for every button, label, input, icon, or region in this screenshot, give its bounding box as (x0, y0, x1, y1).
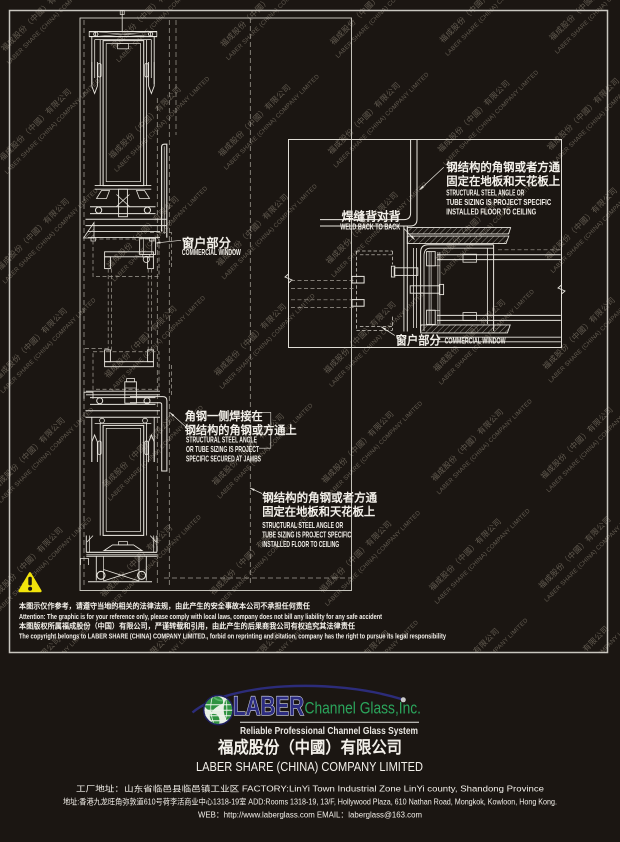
svg-text:福成股份（中國）有限公司: 福成股份（中國）有限公司 (541, 295, 618, 372)
svg-text:LABER SHARE (CHINA) COMPANY LI: LABER SHARE (CHINA) COMPANY LIMITED (196, 760, 423, 774)
svg-text:福成股份（中國）有限公司: 福成股份（中國）有限公司 (319, 409, 396, 486)
svg-text:LABER SHARE (CHINA) COMPANY LI: LABER SHARE (CHINA) COMPANY LIMITED (326, 400, 425, 499)
svg-text:福成股份（中國）有限公司: 福成股份（中國）有限公司 (216, 82, 293, 159)
svg-text:TUBE SIZING IS PROJECT SPECIFI: TUBE SIZING IS PROJECT SPECIFIC (262, 530, 351, 540)
svg-text:LABER SHARE (CHINA) COMPANY LI: LABER SHARE (CHINA) COMPANY LIMITED (109, 294, 208, 393)
svg-text:LABER SHARE (CHINA) COMPANY LI: LABER SHARE (CHINA) COMPANY LIMITED (219, 292, 318, 391)
svg-text:The copyright belongs to LABER: The copyright belongs to LABER SHARE (CH… (19, 632, 447, 641)
svg-text:LABER: LABER (233, 691, 304, 721)
svg-text:LABER SHARE (CHINA) COMPANY LI: LABER SHARE (CHINA) COMPANY LIMITED (111, 185, 210, 284)
svg-text:福成股份（中國）有限公司: 福成股份（中國）有限公司 (106, 84, 183, 161)
svg-text:福成股份（中國）有限公司: 福成股份（中國）有限公司 (100, 413, 177, 490)
svg-text:福成股份（中國）有限公司: 福成股份（中國）有限公司 (94, 742, 171, 819)
svg-text:本图示仅作参考，请遵守当地的相关的法律法规，由此产生的安全事: 本图示仅作参考，请遵守当地的相关的法律法规，由此产生的安全事故本公司不承担任何责… (19, 601, 310, 611)
svg-text:LABER SHARE (CHINA) COMPANY LI: LABER SHARE (CHINA) COMPANY LIMITED (442, 69, 541, 168)
svg-text:钢结构的角钢或者方通: 钢结构的角钢或者方通 (446, 160, 560, 174)
svg-text:LABER SHARE (CHINA) COMPANY LI: LABER SHARE (CHINA) COMPANY LIMITED (433, 507, 532, 606)
svg-text:STRUCTURAL STEEL ANGLE OR: STRUCTURAL STEEL ANGLE OR (446, 187, 524, 197)
svg-text:LABER SHARE (CHINA) COMPANY LI: LABER SHARE (CHINA) COMPANY LIMITED (113, 75, 212, 174)
svg-text:INSTALLED FLOOR TO CEILING: INSTALLED FLOOR TO CEILING (262, 539, 339, 549)
svg-text:福成股份（中國）有限公司: 福成股份（中國）有限公司 (217, 738, 402, 757)
svg-text:INSTALLED FLOOR TO CEILING: INSTALLED FLOOR TO CEILING (446, 207, 536, 217)
svg-text:WELD BACK TO BACK: WELD BACK TO BACK (340, 221, 401, 231)
svg-text:福成股份（中國）有限公司: 福成股份（中國）有限公司 (321, 299, 398, 376)
svg-text:Channel Glass,Inc.: Channel Glass,Inc. (305, 699, 422, 718)
svg-text:LABER SHARE (CHINA) COMPANY LI: LABER SHARE (CHINA) COMPANY LIMITED (0, 296, 98, 395)
svg-text:福成股份（中國）有限公司: 福成股份（中國）有限公司 (536, 514, 613, 591)
svg-text:COMMERCIAL WINDOW: COMMERCIAL WINDOW (182, 247, 242, 257)
svg-text:LABER SHARE (CHINA) COMPANY LI: LABER SHARE (CHINA) COMPANY LIMITED (105, 513, 204, 612)
svg-text:LABER SHARE (CHINA) COMPANY LI: LABER SHARE (CHINA) COMPANY LIMITED (100, 733, 199, 832)
svg-text:福成股份（中國）有限公司: 福成股份（中國）有限公司 (545, 75, 620, 152)
svg-text:福成股份（中國）有限公司: 福成股份（中國）有限公司 (0, 86, 73, 163)
svg-text:角钢一侧焊接在: 角钢一侧焊接在 (185, 409, 263, 423)
svg-text:福成股份（中國）有限公司: 福成股份（中國）有限公司 (96, 632, 173, 709)
svg-text:STRUCTURAL STEEL ANGLE OR: STRUCTURAL STEEL ANGLE OR (262, 520, 343, 530)
svg-text:福成股份（中國）有限公司: 福成股份（中國）有限公司 (435, 78, 512, 155)
svg-text:LABER SHARE (CHINA) COMPANY LI: LABER SHARE (CHINA) COMPANY LIMITED (332, 71, 431, 170)
svg-text:STRUCTURAL STEEL ANGLE: STRUCTURAL STEEL ANGLE (186, 434, 257, 444)
svg-text:LABER SHARE (CHINA) COMPANY LI: LABER SHARE (CHINA) COMPANY LIMITED (0, 406, 96, 505)
svg-text:本图版权所属福成股份（中国）有限公司，严谨转载和引用，由此产: 本图版权所属福成股份（中国）有限公司，严谨转载和引用，由此产生的后果商我公司有权… (19, 621, 355, 631)
svg-text:福成股份（中國）有限公司: 福成股份（中國）有限公司 (0, 196, 71, 273)
svg-text:TUBE SIZING IS PROJECT SPECIFI: TUBE SIZING IS PROJECT SPECIFIC (446, 197, 551, 207)
svg-text:LABER SHARE (CHINA) COMPANY LI: LABER SHARE (CHINA) COMPANY LIMITED (539, 724, 620, 823)
svg-text:SPECIFIC SECURED AT JAMBS: SPECIFIC SECURED AT JAMBS (186, 453, 261, 463)
svg-text:COMMERCIAL WINDOW: COMMERCIAL WINDOW (445, 336, 507, 346)
svg-text:福成股份（中國）有限公司: 福成股份（中國）有限公司 (102, 303, 179, 380)
svg-text:福成股份（中國）有限公司: 福成股份（中國）有限公司 (0, 305, 69, 382)
svg-text:福成股份（中國）有限公司: 福成股份（中國）有限公司 (326, 80, 403, 157)
svg-text:LABER SHARE (CHINA) COMPANY LI: LABER SHARE (CHINA) COMPANY LIMITED (436, 398, 535, 497)
svg-text:福成股份（中國）有限公司: 福成股份（中國）有限公司 (429, 406, 506, 483)
svg-text:福成股份（中國）有限公司: 福成股份（中國）有限公司 (534, 623, 611, 700)
svg-text:LABER SHARE (CHINA) COMPANY LI: LABER SHARE (CHINA) COMPANY LIMITED (429, 726, 528, 825)
svg-text:固定在地板和天花板上: 固定在地板和天花板上 (446, 174, 560, 188)
svg-text:窗户部分: 窗户部分 (396, 333, 441, 348)
svg-text:福成股份（中國）有限公司: 福成股份（中國）有限公司 (538, 404, 615, 481)
svg-text:WEB：http://www.laberglass.com: WEB：http://www.laberglass.com EMAIL：labe… (198, 811, 422, 820)
svg-text:Attention: The graphic is for: Attention: The graphic is for your refer… (19, 612, 382, 621)
svg-text:福成股份（中國）有限公司: 福成股份（中國）有限公司 (0, 744, 61, 821)
svg-text:LABER SHARE (CHINA) COMPANY LI: LABER SHARE (CHINA) COMPANY LIMITED (317, 838, 416, 842)
svg-text:工厂地址：山东省临邑县临邑镇工业区 FACTORY:Li: 工厂地址：山东省临邑县临邑镇工业区 FACTORY:LinYi Town Ind… (76, 784, 545, 794)
svg-text:Reliable Professional Channel: Reliable Professional Channel Glass Syst… (240, 726, 418, 737)
svg-text:LABER SHARE (CHINA) COMPANY LI: LABER SHARE (CHINA) COMPANY LIMITED (223, 73, 322, 172)
svg-text:LABER SHARE (CHINA) COMPANY LI: LABER SHARE (CHINA) COMPANY LIMITED (221, 183, 320, 282)
svg-text:固定在地板和天花板上: 固定在地板和天花板上 (262, 505, 375, 519)
svg-text:钢结构的角钢或者方通: 钢结构的角钢或者方通 (262, 491, 377, 505)
svg-text:福成股份（中國）有限公司: 福成股份（中國）有限公司 (98, 522, 175, 599)
svg-text:OR TUBE SIZING IS PROJECT: OR TUBE SIZING IS PROJECT (186, 444, 259, 454)
svg-text:LABER SHARE (CHINA) COMPANY LI: LABER SHARE (CHINA) COMPANY LIMITED (427, 836, 526, 842)
svg-text:LABER SHARE (CHINA) COMPANY LI: LABER SHARE (CHINA) COMPANY LIMITED (4, 77, 103, 176)
svg-text:地址:香港九龙旺角弥敦道610号荷李活商业中心1318-19: 地址:香港九龙旺角弥敦道610号荷李活商业中心1318-19室 ADD:Room… (63, 797, 557, 807)
svg-text:LABER SHARE (CHINA) COMPANY LI: LABER SHARE (CHINA) COMPANY LIMITED (431, 617, 530, 716)
svg-text:LABER SHARE (CHINA) COMPANY LI: LABER SHARE (CHINA) COMPANY LIMITED (537, 834, 620, 842)
svg-text:福成股份（中國）有限公司: 福成股份（中國）有限公司 (427, 516, 504, 593)
